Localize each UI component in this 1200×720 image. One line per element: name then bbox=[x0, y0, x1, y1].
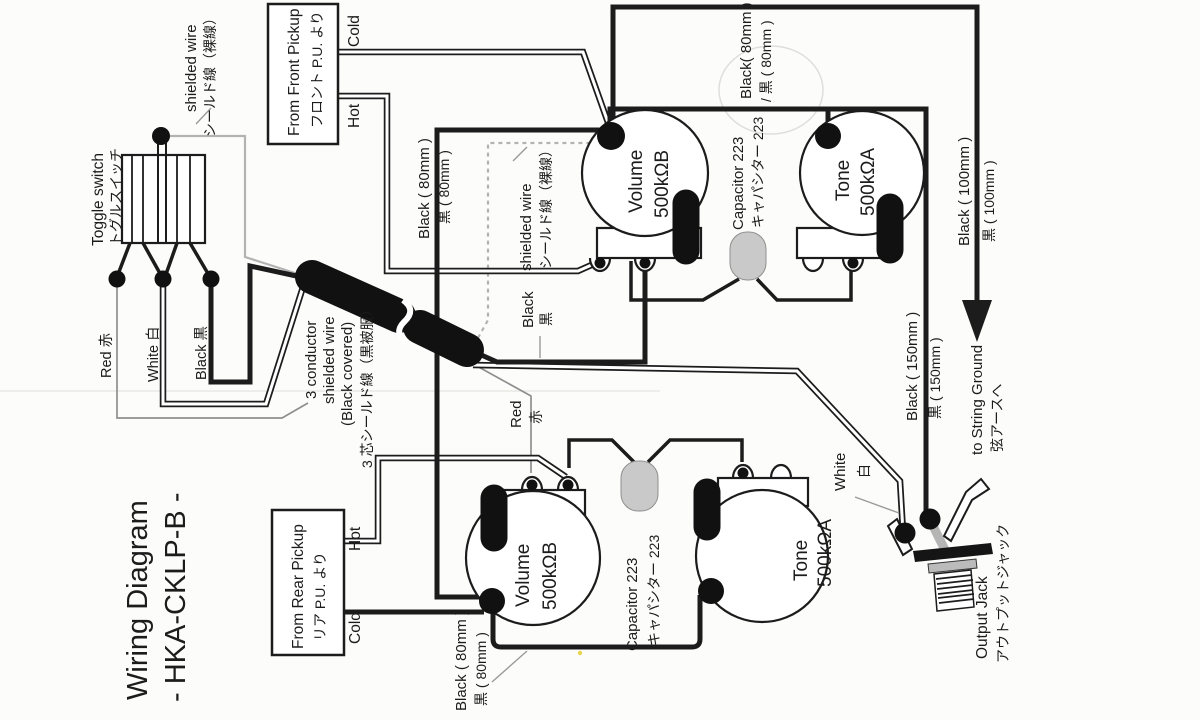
solder-dot bbox=[815, 123, 841, 149]
shielded-wire-switch-label-jp: シールド線（裸線） bbox=[202, 11, 218, 137]
output-jack-label-en: Output Jack bbox=[974, 576, 991, 659]
front-pickup-box bbox=[268, 4, 338, 144]
solder-dot bbox=[698, 578, 724, 604]
scanned-wiring-diagram: Wiring Diagram - HKA-CKLP-B - Toggle swi… bbox=[0, 0, 1200, 720]
shielded-wire-volume-label-en: shielded wire bbox=[518, 183, 535, 271]
shielded-wire-switch-label-en: shielded wire bbox=[183, 24, 200, 112]
front-capacitor-label-en: Capacitor 223 bbox=[730, 137, 747, 230]
white-to-jack-label-jp: 白 bbox=[856, 464, 872, 478]
switch-wire-black-label: Black 黒 bbox=[194, 326, 210, 380]
lug-dot bbox=[595, 258, 606, 269]
lug-dot bbox=[640, 258, 651, 269]
switch-lug-dot bbox=[203, 271, 220, 288]
rear-volume-value: 500kΩB bbox=[540, 542, 561, 610]
output-jack-label-jp: アウトプットジャック bbox=[995, 524, 1011, 663]
black-80-switch-label-en: Black ( 80mm ) bbox=[416, 138, 433, 239]
rear-pickup-hot-label: Hot bbox=[347, 526, 364, 551]
switch-lug-dot bbox=[155, 271, 172, 288]
red-conductor-label-en: Red bbox=[508, 400, 525, 428]
switch-lug-dot bbox=[109, 271, 126, 288]
wiring-diagram-svg: Wiring Diagram - HKA-CKLP-B - Toggle swi… bbox=[0, 0, 1200, 720]
switch-wire-white-label: White 白 bbox=[145, 326, 162, 382]
black-conductor-label-jp: 黒 bbox=[538, 312, 554, 326]
rear-tone-label: Tone bbox=[791, 540, 812, 581]
black-100-label-jp: 黒 ( 100mm ) bbox=[981, 160, 997, 242]
string-ground-label-en: to String Ground bbox=[969, 345, 986, 455]
switch-body bbox=[122, 155, 205, 243]
lug-dot bbox=[738, 468, 749, 479]
black-80-rear-label-jp: 黒 ( 80mm ) bbox=[473, 632, 489, 706]
black-150-label-jp: 黒 ( 150mm ) bbox=[927, 337, 943, 419]
shielded-wire-volume-label-jp: シールド線（裸線） bbox=[538, 143, 554, 269]
solder-dot bbox=[597, 122, 625, 150]
cable-label-jp: 3 芯シールド線（黒被服） bbox=[359, 302, 375, 468]
front-pickup-label-en: From Front Pickup bbox=[286, 9, 303, 136]
white-to-jack-label-en: White bbox=[832, 453, 849, 491]
rear-capacitor-label-en: Capacitor 223 bbox=[624, 558, 641, 651]
black-80-rear-label-en: Black ( 80mm ) bbox=[453, 610, 470, 711]
red-conductor-label-jp: 赤 bbox=[528, 410, 544, 424]
cable-label-line1: 3 conductor bbox=[303, 321, 320, 399]
front-pickup-hot-label: Hot bbox=[346, 103, 363, 128]
front-tone-value: 500kΩA bbox=[858, 148, 879, 216]
switch-wire-red-label: Red 赤 bbox=[98, 333, 115, 378]
black-80-front-label-jp: / 黒 ( 80mm ) bbox=[758, 20, 774, 102]
lug-dot bbox=[848, 258, 859, 269]
diagram-title-line2: - HKA-CKLP-B - bbox=[160, 493, 192, 702]
rear-capacitor-body bbox=[621, 461, 658, 511]
string-ground-label-jp: 弦アースへ bbox=[989, 384, 1005, 452]
black-80-front-label-en: Black( 80mm ) bbox=[738, 2, 755, 99]
black-conductor-label-en: Black bbox=[520, 291, 537, 328]
solder-dot bbox=[479, 588, 505, 614]
front-volume-value: 500kΩB bbox=[652, 150, 673, 218]
rear-pickup-label-jp: リア P.U. より bbox=[312, 552, 328, 641]
rear-volume-label: Volume bbox=[513, 544, 534, 607]
toggle-switch-label-jp: トグルスイッチ bbox=[108, 148, 124, 246]
jack-tip-solder-dot bbox=[895, 523, 916, 544]
front-tone-label: Tone bbox=[833, 160, 854, 201]
front-pickup-cold-label: Cold bbox=[346, 15, 363, 47]
rear-pickup-label-en: From Rear Pickup bbox=[290, 524, 307, 649]
rear-pickup-box bbox=[272, 510, 344, 655]
rear-capacitor-label-jp: キャパシター 223 bbox=[646, 535, 662, 646]
front-pickup-label-jp: フロント P.U. より bbox=[309, 11, 325, 128]
cable-label-line2: shielded wire bbox=[321, 316, 338, 404]
toggle-switch-label-en: Toggle switch bbox=[90, 153, 107, 246]
black-80-switch-label-jp: 黒 ( 80mm ) bbox=[436, 150, 452, 224]
scan-speck bbox=[578, 651, 582, 655]
black-100-label-en: Black ( 100mm ) bbox=[956, 137, 973, 246]
front-capacitor-label-jp: キャパシター 223 bbox=[750, 117, 766, 228]
rear-tone-value: 500kΩA bbox=[815, 519, 836, 587]
black-150-label-en: Black ( 150mm ) bbox=[904, 312, 921, 421]
front-volume-label: Volume bbox=[626, 150, 647, 213]
jack-ground-solder-dot bbox=[920, 509, 941, 530]
switch-ground-lug-dot bbox=[152, 127, 170, 145]
rear-pickup-cold-label: Cold bbox=[347, 612, 364, 644]
lug-dot bbox=[563, 480, 574, 491]
lug-dot bbox=[527, 480, 538, 491]
cable-label-line3: (Black covered) bbox=[339, 322, 356, 426]
front-capacitor-body bbox=[730, 232, 766, 280]
diagram-title-line1: Wiring Diagram bbox=[122, 500, 154, 700]
